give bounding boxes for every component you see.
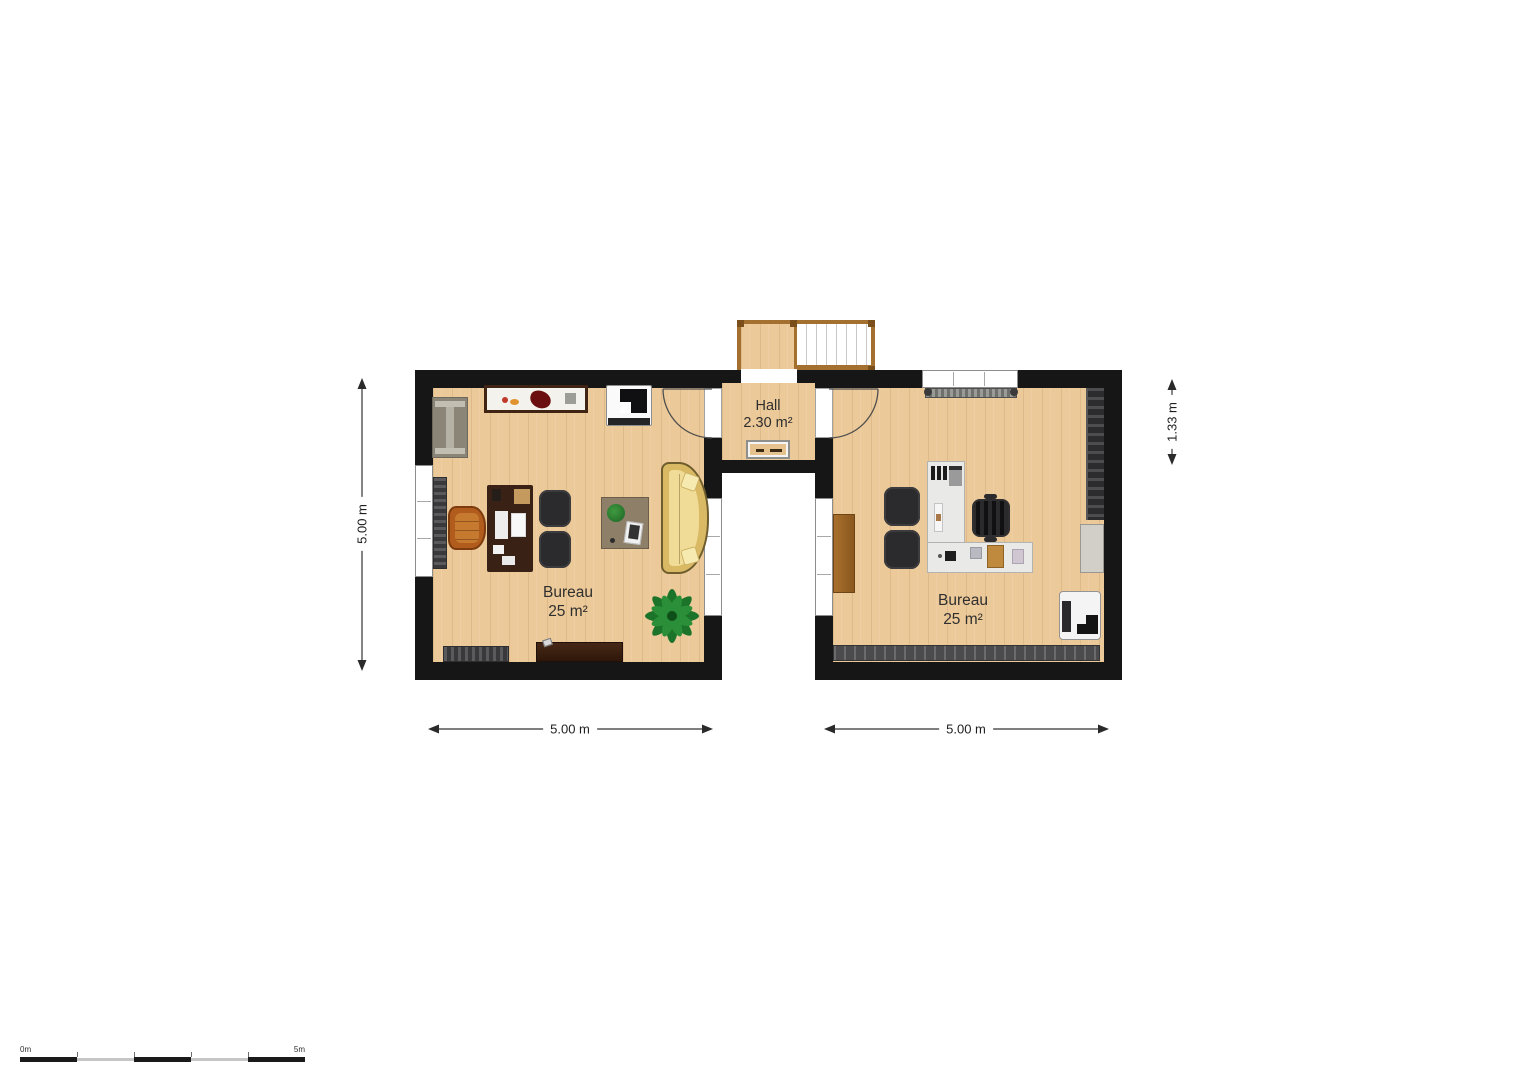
radiator-cap	[924, 388, 932, 396]
room-area: 25 m²	[888, 610, 1038, 629]
scale-start-label: 0m	[20, 1045, 31, 1054]
stair-rail	[794, 365, 871, 369]
left-office-wall-bottom	[415, 662, 722, 680]
scale-tick	[77, 1052, 78, 1057]
executive-chair-cushion	[455, 513, 479, 543]
visitor-chair	[539, 490, 571, 527]
plan-linework	[0, 0, 1536, 1087]
scale-segment	[191, 1058, 248, 1061]
table-plant	[607, 504, 625, 522]
scale-segment	[134, 1057, 191, 1062]
room-area: 25 m²	[493, 602, 643, 621]
credenza-paper	[542, 638, 553, 647]
scale-segment	[77, 1058, 134, 1061]
dimension-label-bottom-right: 5.00 m	[939, 722, 993, 737]
radiator-cap	[1010, 388, 1018, 396]
printer-left-office	[606, 385, 652, 426]
scale-tick	[134, 1052, 135, 1057]
desk-pad-gray	[970, 547, 982, 559]
desk-paper	[511, 513, 526, 537]
dimension-label-right-height: 1.33 m	[1165, 395, 1180, 449]
desk-pad-lavender	[1012, 549, 1024, 564]
visitor-chair	[884, 487, 920, 526]
coffee-table	[601, 497, 649, 549]
floor-plan-canvas: Bureau 25 m² Bureau 25 m² Hall 2.30 m² 5…	[0, 0, 1536, 1087]
decor-box	[565, 393, 576, 404]
desk-pad-wood	[987, 545, 1004, 568]
executive-chair	[448, 506, 486, 550]
radiator-top-right-office	[925, 388, 1017, 398]
room-name: Bureau	[888, 591, 1038, 610]
office-chair	[972, 499, 1010, 537]
desk-dot	[938, 554, 942, 558]
right-office-wall-right	[1104, 388, 1122, 662]
right-office-wall-bottom	[815, 662, 1122, 680]
room-area: 2.30 m²	[698, 415, 838, 432]
radiator-left-wall	[433, 477, 447, 569]
stair-treads	[794, 324, 871, 365]
desk-machine	[949, 466, 962, 486]
dimension-label-left-height: 5.00 m	[355, 497, 370, 551]
room-name: Hall	[698, 398, 838, 415]
whiteboard	[1080, 524, 1104, 573]
magazine-cover	[628, 524, 640, 539]
printer-tray	[620, 402, 631, 413]
printer-right-office	[1059, 591, 1101, 640]
sofa-pillow	[680, 546, 700, 566]
scale-end-label: 5m	[294, 1045, 305, 1054]
desk-knob	[936, 514, 941, 521]
desk-pad	[514, 489, 530, 504]
printer-base	[608, 418, 650, 425]
office-chair-arm	[984, 494, 997, 499]
console-table-edge	[435, 448, 465, 454]
desk-paper	[495, 511, 508, 539]
credenza	[536, 642, 623, 662]
desk-left-office	[487, 485, 533, 572]
office-chair-arm	[984, 537, 997, 542]
hall-stair-opening	[741, 369, 797, 383]
hall-wall-bottom	[704, 460, 833, 473]
flower-decor	[502, 397, 508, 403]
cabinet-west-wall	[833, 514, 855, 593]
room-label-bureau-right: Bureau 25 m²	[888, 591, 1038, 629]
bookshelf-east-wall	[1086, 388, 1104, 520]
visitor-chair	[539, 531, 571, 568]
cup	[610, 538, 615, 543]
stair-post	[790, 320, 797, 327]
scale-tick	[191, 1052, 192, 1057]
stair-post	[868, 320, 875, 327]
right-office-window-north	[922, 370, 1018, 388]
room-label-bureau-left: Bureau 25 m²	[493, 583, 643, 621]
radiator-bottom-left-office	[443, 646, 509, 662]
palm-plant	[641, 582, 703, 650]
stair-post	[737, 320, 744, 327]
console-table-leg	[446, 407, 454, 448]
printer-side-panel	[1062, 601, 1071, 632]
dimension-label-bottom-left: 5.00 m	[543, 722, 597, 737]
intercom-dots	[770, 449, 782, 452]
desk-black-box	[945, 551, 956, 561]
staircase-landing	[737, 320, 875, 373]
visitor-chair	[884, 530, 920, 569]
intercom-dots	[756, 449, 764, 452]
scale-segment	[248, 1057, 305, 1062]
sideboard	[484, 385, 588, 413]
room-label-hall: Hall 2.30 m²	[698, 398, 838, 432]
left-office-window-west	[415, 465, 433, 577]
rug	[833, 645, 1100, 661]
printer-tray	[1077, 615, 1086, 624]
scale-bar: 0m 5m	[20, 1045, 305, 1065]
desk-bottles	[931, 466, 948, 480]
desk-paper	[502, 556, 515, 565]
right-office-window-west	[815, 498, 833, 616]
intercom-panel	[746, 440, 790, 459]
room-name: Bureau	[493, 583, 643, 602]
scale-segment	[20, 1057, 77, 1062]
flower-decor	[510, 399, 519, 405]
console-table	[432, 397, 468, 458]
scale-tick	[248, 1052, 249, 1057]
desk-item	[492, 489, 501, 501]
desk-paper	[493, 545, 504, 554]
